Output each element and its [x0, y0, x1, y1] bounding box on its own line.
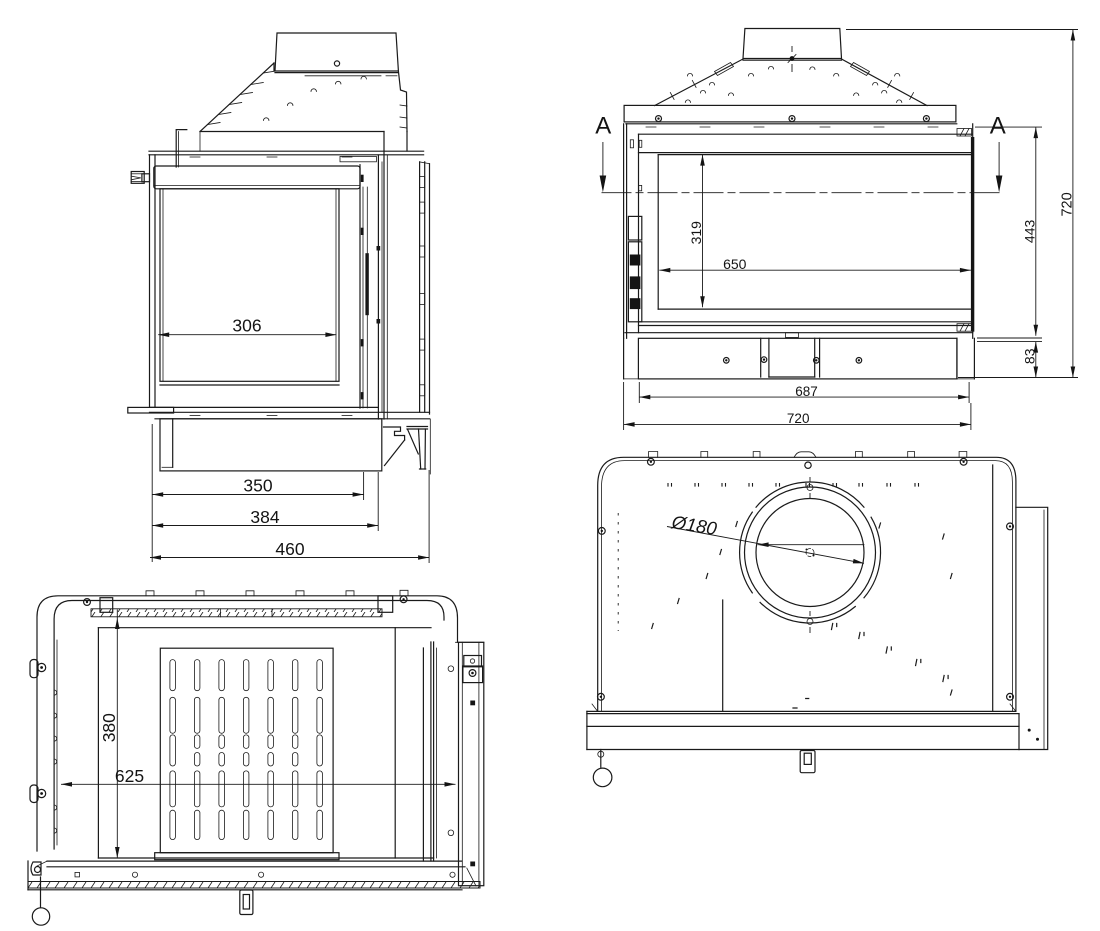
svg-text:A: A — [595, 113, 611, 140]
svg-text:306: 306 — [232, 316, 261, 336]
svg-text:83: 83 — [1022, 348, 1038, 364]
svg-text:625: 625 — [115, 766, 144, 786]
svg-text:384: 384 — [250, 507, 279, 527]
svg-text:720: 720 — [787, 411, 810, 426]
svg-text:443: 443 — [1022, 220, 1038, 244]
svg-text:A: A — [990, 113, 1006, 140]
svg-text:460: 460 — [275, 539, 304, 559]
svg-text:687: 687 — [795, 384, 818, 399]
svg-text:350: 350 — [243, 476, 272, 496]
svg-text:650: 650 — [723, 256, 747, 272]
svg-text:319: 319 — [688, 221, 704, 245]
svg-text:380: 380 — [99, 713, 119, 742]
svg-text:720: 720 — [1060, 192, 1076, 216]
